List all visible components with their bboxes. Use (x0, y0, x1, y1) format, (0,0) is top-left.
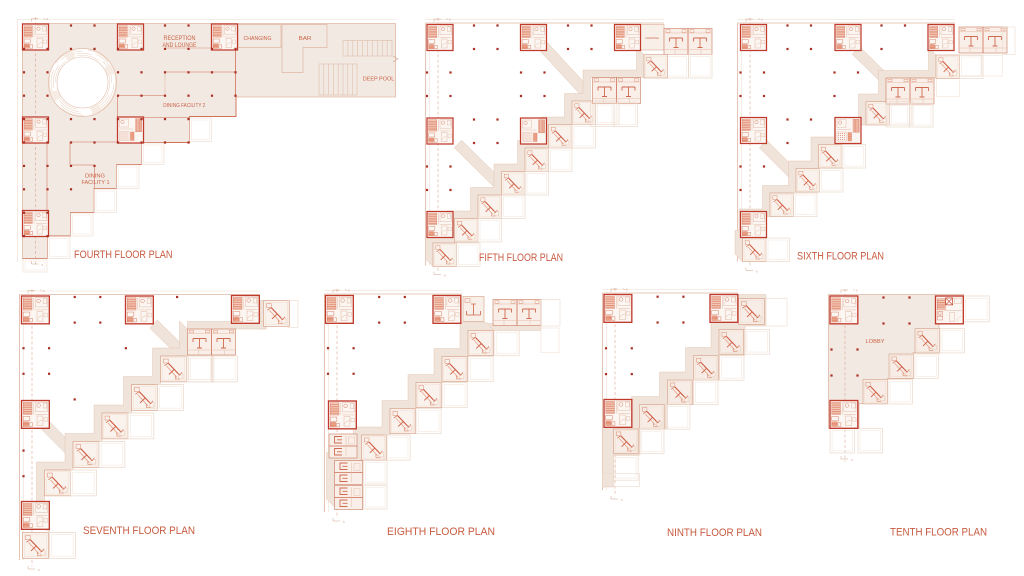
svg-text:RECEPTION: RECEPTION (164, 36, 196, 42)
svg-text:6: 6 (38, 568, 40, 572)
svg-text:TENTH FLOOR PLAN: TENTH FLOOR PLAN (890, 527, 987, 539)
svg-text:DINING: DINING (85, 173, 105, 179)
svg-text:6: 6 (42, 263, 44, 267)
svg-text:6: 6 (444, 274, 446, 278)
svg-text:6: 6 (756, 270, 758, 274)
svg-text:6: 6 (851, 458, 853, 462)
svg-text:FACILITY 1: FACILITY 1 (82, 180, 110, 186)
svg-text:SEVENTH FLOOR PLAN: SEVENTH FLOOR PLAN (83, 525, 195, 537)
svg-text:6: 6 (621, 498, 623, 502)
svg-text:6: 6 (343, 520, 345, 524)
svg-text:BAR: BAR (299, 36, 312, 42)
svg-text:6: 6 (47, 17, 49, 21)
svg-text:6: 6 (856, 289, 858, 293)
svg-text:CHANGING: CHANGING (244, 36, 272, 42)
svg-text:SIXTH FLOOR PLAN: SIXTH FLOOR PLAN (797, 251, 884, 263)
svg-text:DEEP POOL: DEEP POOL (363, 77, 395, 83)
svg-text:EIGHTH FLOOR PLAN: EIGHTH FLOOR PLAN (387, 526, 495, 538)
svg-text:AND LOUNGE: AND LOUNGE (163, 43, 197, 49)
svg-text:FOURTH FLOOR PLAN: FOURTH FLOOR PLAN (74, 249, 173, 261)
svg-text:DINING FACILITY 2: DINING FACILITY 2 (163, 103, 205, 109)
svg-text:FIFTH FLOOR PLAN: FIFTH FLOOR PLAN (479, 252, 563, 264)
svg-text:LOBBY: LOBBY (866, 339, 885, 345)
svg-text:CHANGING: CHANGING (645, 36, 659, 40)
svg-text:NINTH FLOOR PLAN: NINTH FLOOR PLAN (667, 527, 762, 539)
